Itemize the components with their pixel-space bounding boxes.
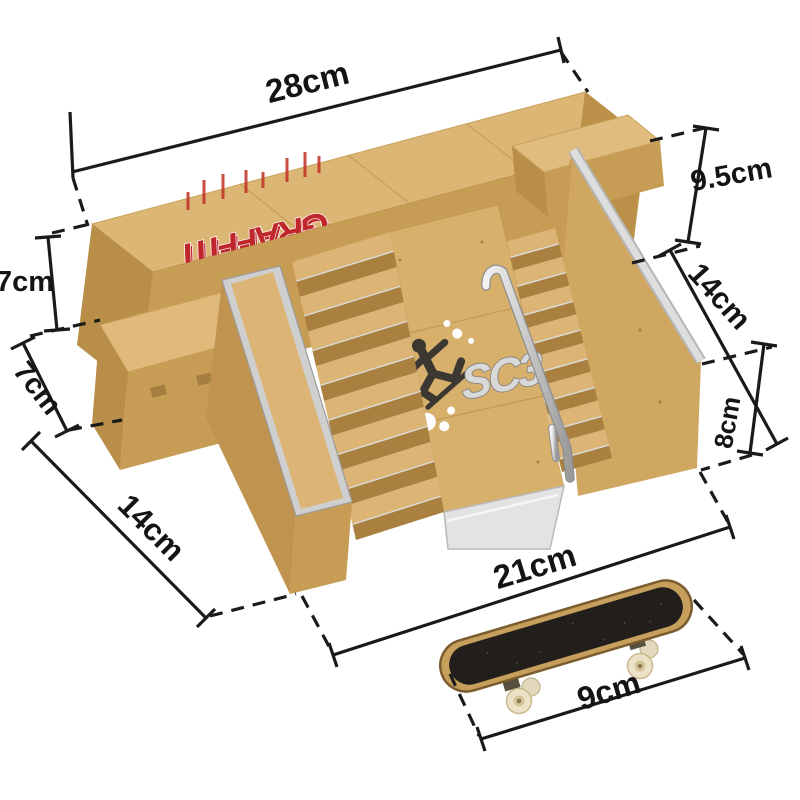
screw-dot [481, 241, 484, 244]
fingerboard [434, 574, 701, 713]
wheel-near-rear [507, 689, 532, 714]
skatepark-dimension-diagram: GRAFFITI GRAFFITI GRAFFITI [0, 0, 800, 800]
deck-group [434, 574, 701, 707]
dim-label-skateboard-length: 9cm [573, 664, 645, 717]
screw-dot [399, 259, 402, 262]
screw-dot [658, 400, 661, 403]
product-dimension-image: GRAFFITI GRAFFITI GRAFFITI [0, 0, 800, 800]
dim-label-left-block-height: 7cm [0, 266, 54, 298]
dim-label-bank-length: 14cm [681, 257, 757, 336]
dim-label-platform-width: 28cm [262, 54, 353, 110]
dim-label-bank-height: 8cm [708, 394, 747, 450]
ledge-front-face [290, 502, 352, 594]
dim-label-stairs-depth: 14cm [111, 487, 192, 568]
screw-dot [638, 328, 641, 331]
screw-dot [537, 461, 540, 464]
skatepark-ramp-set: GRAFFITI GRAFFITI GRAFFITI [77, 92, 701, 594]
